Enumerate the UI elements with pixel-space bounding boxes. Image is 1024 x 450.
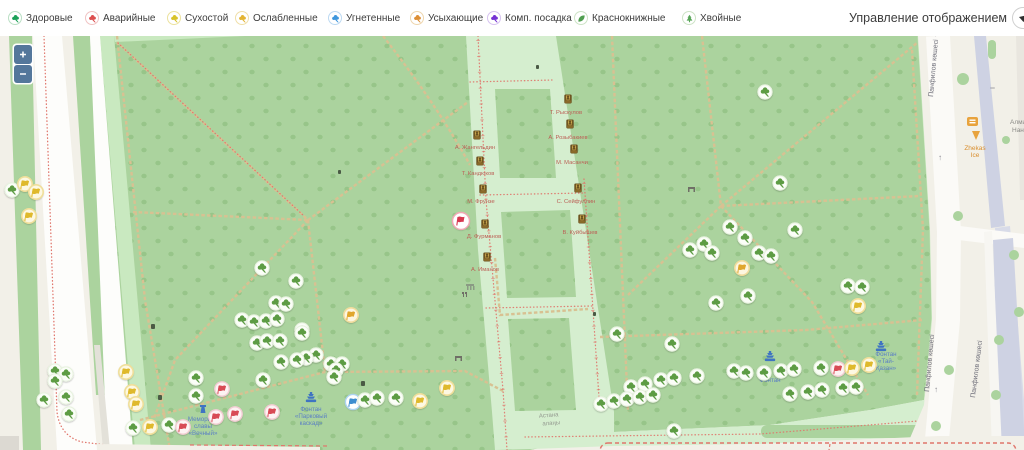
svg-text:В. Куйбышев: В. Куйбышев — [562, 229, 597, 236]
svg-text:Т. Кандюков: Т. Кандюков — [462, 171, 495, 177]
svg-text:ᆖ: ᆖ — [990, 86, 995, 92]
svg-text:каскад»: каскад» — [300, 420, 323, 427]
svg-text:С. Сейфуллин: С. Сейфуллин — [557, 198, 596, 205]
svg-text:Қазан»: Қазан» — [876, 365, 897, 372]
svg-text:Нан: Нан — [1012, 127, 1024, 134]
svg-text:«Тай-: «Тай- — [878, 358, 894, 365]
svg-text:Фонтан: Фонтан — [875, 351, 896, 358]
svg-text:↑: ↑ — [938, 153, 942, 162]
svg-text:А. Иманов: А. Иманов — [471, 267, 499, 273]
svg-text:М. Масанчи: М. Масанчи — [556, 160, 588, 166]
svg-text:славы: славы — [194, 423, 212, 430]
svg-text:«Вечный»: «Вечный» — [189, 430, 218, 437]
svg-text:Т. Рыскулов: Т. Рыскулов — [550, 110, 582, 116]
svg-text:«Парковый: «Парковый — [295, 413, 328, 420]
svg-text:А. Розыбакиев: А. Розыбакиев — [548, 135, 587, 141]
svg-text:Zhekas: Zhekas — [964, 145, 986, 152]
svg-text:Алма: Алма — [1010, 119, 1024, 126]
svg-text:Д. Фурманов: Д. Фурманов — [467, 234, 501, 240]
svg-text:Ice: Ice — [971, 152, 980, 159]
svg-text:Фонтан: Фонтан — [300, 406, 321, 413]
svg-text:М. Фрунзе: М. Фрунзе — [467, 199, 495, 205]
svg-text:↑: ↑ — [934, 385, 938, 394]
svg-text:алаңы: алаңы — [542, 420, 560, 427]
svg-text:А. Жангельдин: А. Жангельдин — [455, 145, 495, 151]
